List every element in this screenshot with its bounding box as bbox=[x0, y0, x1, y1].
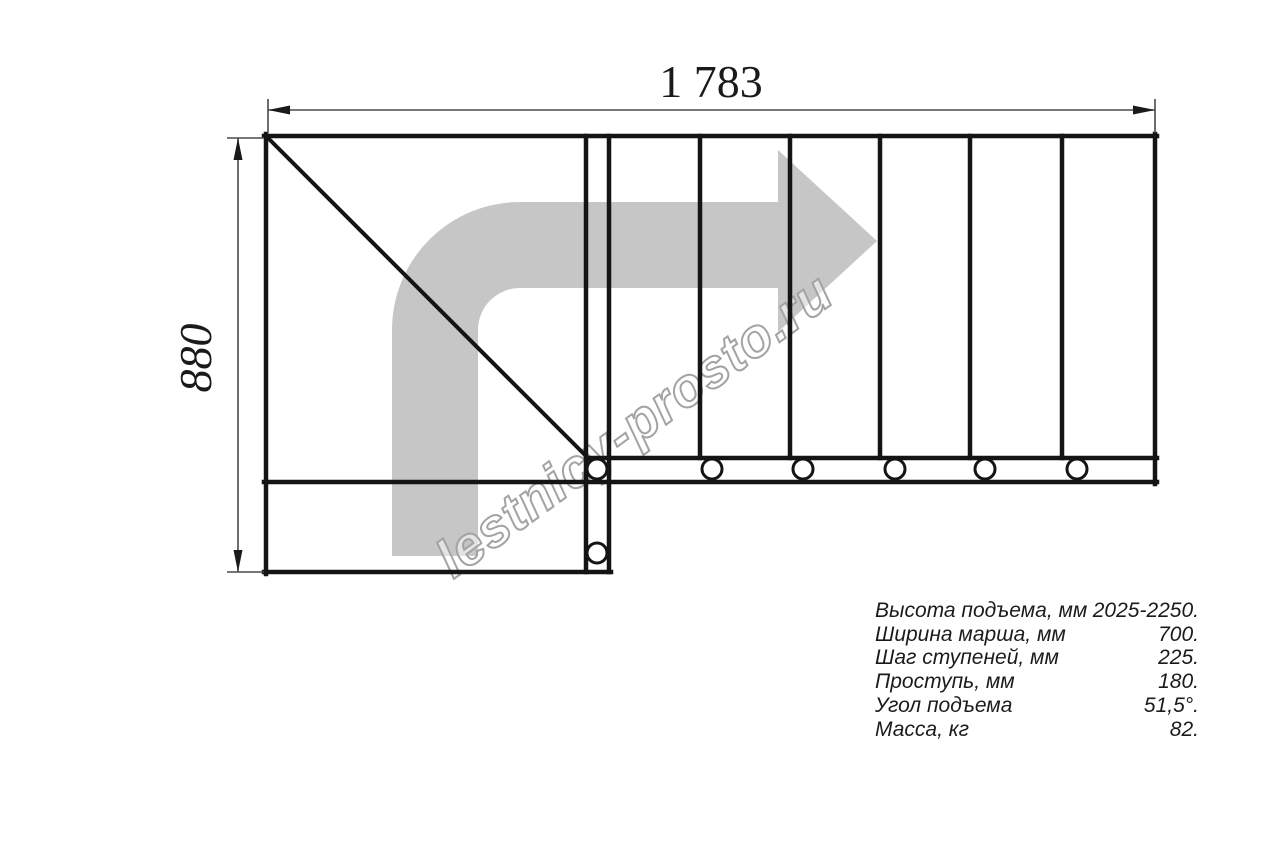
left-dimension: 880 bbox=[170, 138, 264, 572]
dimension-arrow-icon bbox=[1133, 106, 1155, 115]
top-dimension-value: 1 783 bbox=[659, 56, 763, 107]
watermark-text: lestnicy-prosto.ru bbox=[425, 262, 844, 589]
baluster-marker bbox=[975, 459, 995, 479]
top-dimension: 1 783 bbox=[268, 56, 1155, 133]
baluster-marker bbox=[793, 459, 813, 479]
spec-value: 180. bbox=[1158, 670, 1199, 694]
dimension-arrow-icon bbox=[234, 138, 243, 160]
spec-row-rise-angle: Угол подъема 51,5°. bbox=[875, 694, 1199, 718]
dimension-arrow-icon bbox=[234, 550, 243, 572]
spec-label: Шаг ступеней, мм bbox=[875, 646, 1059, 670]
spec-value: 51,5°. bbox=[1144, 694, 1199, 718]
baluster-marker bbox=[1067, 459, 1087, 479]
spec-label: Ширина марша, мм bbox=[875, 623, 1066, 647]
baluster-markers bbox=[587, 459, 1087, 563]
spec-table: Высота подъема, мм 2025-2250. Ширина мар… bbox=[875, 599, 1199, 741]
baluster-marker bbox=[702, 459, 722, 479]
left-dimension-value: 880 bbox=[170, 324, 221, 393]
spec-row-height: Высота подъема, мм 2025-2250. bbox=[875, 599, 1199, 623]
spec-label: Масса, кг bbox=[875, 718, 969, 742]
spec-row-mass: Масса, кг 82. bbox=[875, 718, 1199, 742]
spec-row-step-pitch: Шаг ступеней, мм 225. bbox=[875, 646, 1199, 670]
spec-row-tread-depth: Проступь, мм 180. bbox=[875, 670, 1199, 694]
spec-label: Высота подъема, мм bbox=[875, 599, 1087, 623]
spec-value: 700. bbox=[1158, 623, 1199, 647]
baluster-marker bbox=[587, 543, 607, 563]
baluster-marker bbox=[885, 459, 905, 479]
spec-label: Проступь, мм bbox=[875, 670, 1015, 694]
spec-value: 2025-2250. bbox=[1093, 599, 1199, 623]
dimension-arrow-icon bbox=[268, 106, 290, 115]
staircase-drawing-page: lestnicy-prosto.ru bbox=[0, 0, 1280, 853]
spec-label: Угол подъема bbox=[875, 694, 1012, 718]
baluster-marker bbox=[587, 459, 607, 479]
spec-row-flight-width: Ширина марша, мм 700. bbox=[875, 623, 1199, 647]
spec-value: 82. bbox=[1170, 718, 1199, 742]
spec-value: 225. bbox=[1158, 646, 1199, 670]
